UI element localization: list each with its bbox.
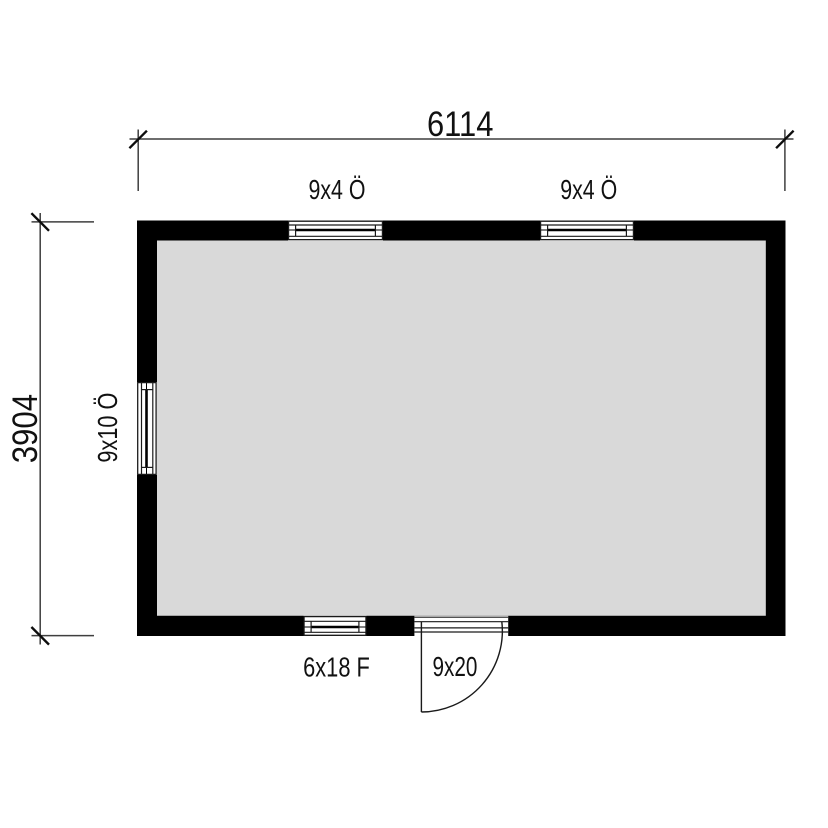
svg-text:9x4 Ö: 9x4 Ö: [309, 174, 366, 205]
svg-text:6x18 F: 6x18 F: [303, 651, 370, 682]
svg-text:3904: 3904: [6, 394, 45, 463]
svg-text:6114: 6114: [427, 105, 494, 144]
svg-text:9x10 Ö: 9x10 Ö: [92, 393, 123, 463]
svg-text:9x20: 9x20: [433, 651, 478, 682]
svg-text:9x4 Ö: 9x4 Ö: [560, 174, 617, 205]
